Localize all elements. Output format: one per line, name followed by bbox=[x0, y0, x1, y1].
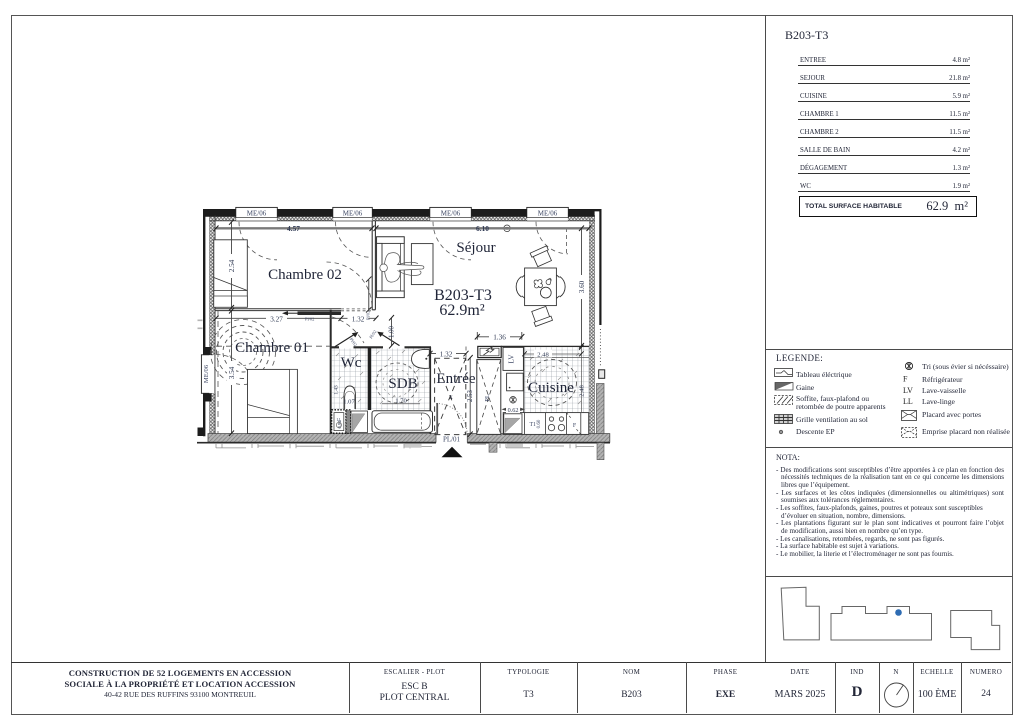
svg-text:ME/06: ME/06 bbox=[441, 209, 461, 217]
svg-text:Pl/02: Pl/02 bbox=[349, 337, 358, 347]
svg-text:Wc: Wc bbox=[341, 355, 362, 371]
svg-text:1.70: 1.70 bbox=[395, 398, 407, 405]
svg-text:T1: T1 bbox=[530, 422, 537, 428]
svg-text:0.62: 0.62 bbox=[508, 407, 519, 414]
svg-text:PL/01: PL/01 bbox=[443, 436, 461, 444]
svg-text:Pl/02: Pl/02 bbox=[368, 329, 377, 339]
svg-text:SDB: SDB bbox=[388, 376, 417, 392]
svg-text:Séjour: Séjour bbox=[456, 240, 495, 256]
svg-text:Cuisine: Cuisine bbox=[528, 380, 574, 396]
svg-text:2.48: 2.48 bbox=[579, 385, 586, 397]
svg-text:1.32: 1.32 bbox=[352, 315, 365, 323]
svg-text:LV: LV bbox=[903, 386, 913, 395]
svg-text:2.53: 2.53 bbox=[467, 389, 474, 401]
svg-text:0.60: 0.60 bbox=[537, 419, 542, 428]
svg-text:3.54: 3.54 bbox=[228, 366, 236, 379]
svg-text:x: x bbox=[449, 393, 453, 401]
svg-text:PL: PL bbox=[484, 394, 491, 402]
svg-text:0.94: 0.94 bbox=[337, 420, 342, 429]
svg-text:6.10: 6.10 bbox=[476, 224, 489, 233]
svg-text:4.57: 4.57 bbox=[287, 224, 300, 233]
svg-text:62.9m²: 62.9m² bbox=[439, 302, 484, 319]
svg-text:F: F bbox=[903, 375, 908, 384]
svg-text:ME/06: ME/06 bbox=[203, 364, 210, 383]
svg-text:Chambre 02: Chambre 02 bbox=[268, 267, 342, 283]
svg-text:1.32: 1.32 bbox=[440, 351, 453, 359]
svg-text:1.07: 1.07 bbox=[343, 399, 355, 406]
svg-text:2.48: 2.48 bbox=[537, 351, 549, 358]
svg-text:3.60: 3.60 bbox=[578, 280, 586, 293]
svg-text:1.00: 1.00 bbox=[389, 325, 396, 337]
svg-text:2.54: 2.54 bbox=[228, 259, 236, 272]
svg-text:1.36: 1.36 bbox=[493, 334, 506, 342]
svg-text:ME/06: ME/06 bbox=[538, 209, 558, 217]
svg-text:ME/06: ME/06 bbox=[343, 209, 363, 217]
svg-text:Chambre 01: Chambre 01 bbox=[235, 340, 309, 356]
svg-text:LV: LV bbox=[508, 354, 516, 364]
svg-text:Pl/02: Pl/02 bbox=[305, 317, 314, 322]
svg-text:3.27: 3.27 bbox=[270, 315, 283, 323]
svg-text:LL: LL bbox=[903, 397, 913, 406]
svg-text:ME/06: ME/06 bbox=[247, 209, 267, 217]
svg-text:1.43: 1.43 bbox=[334, 385, 340, 395]
